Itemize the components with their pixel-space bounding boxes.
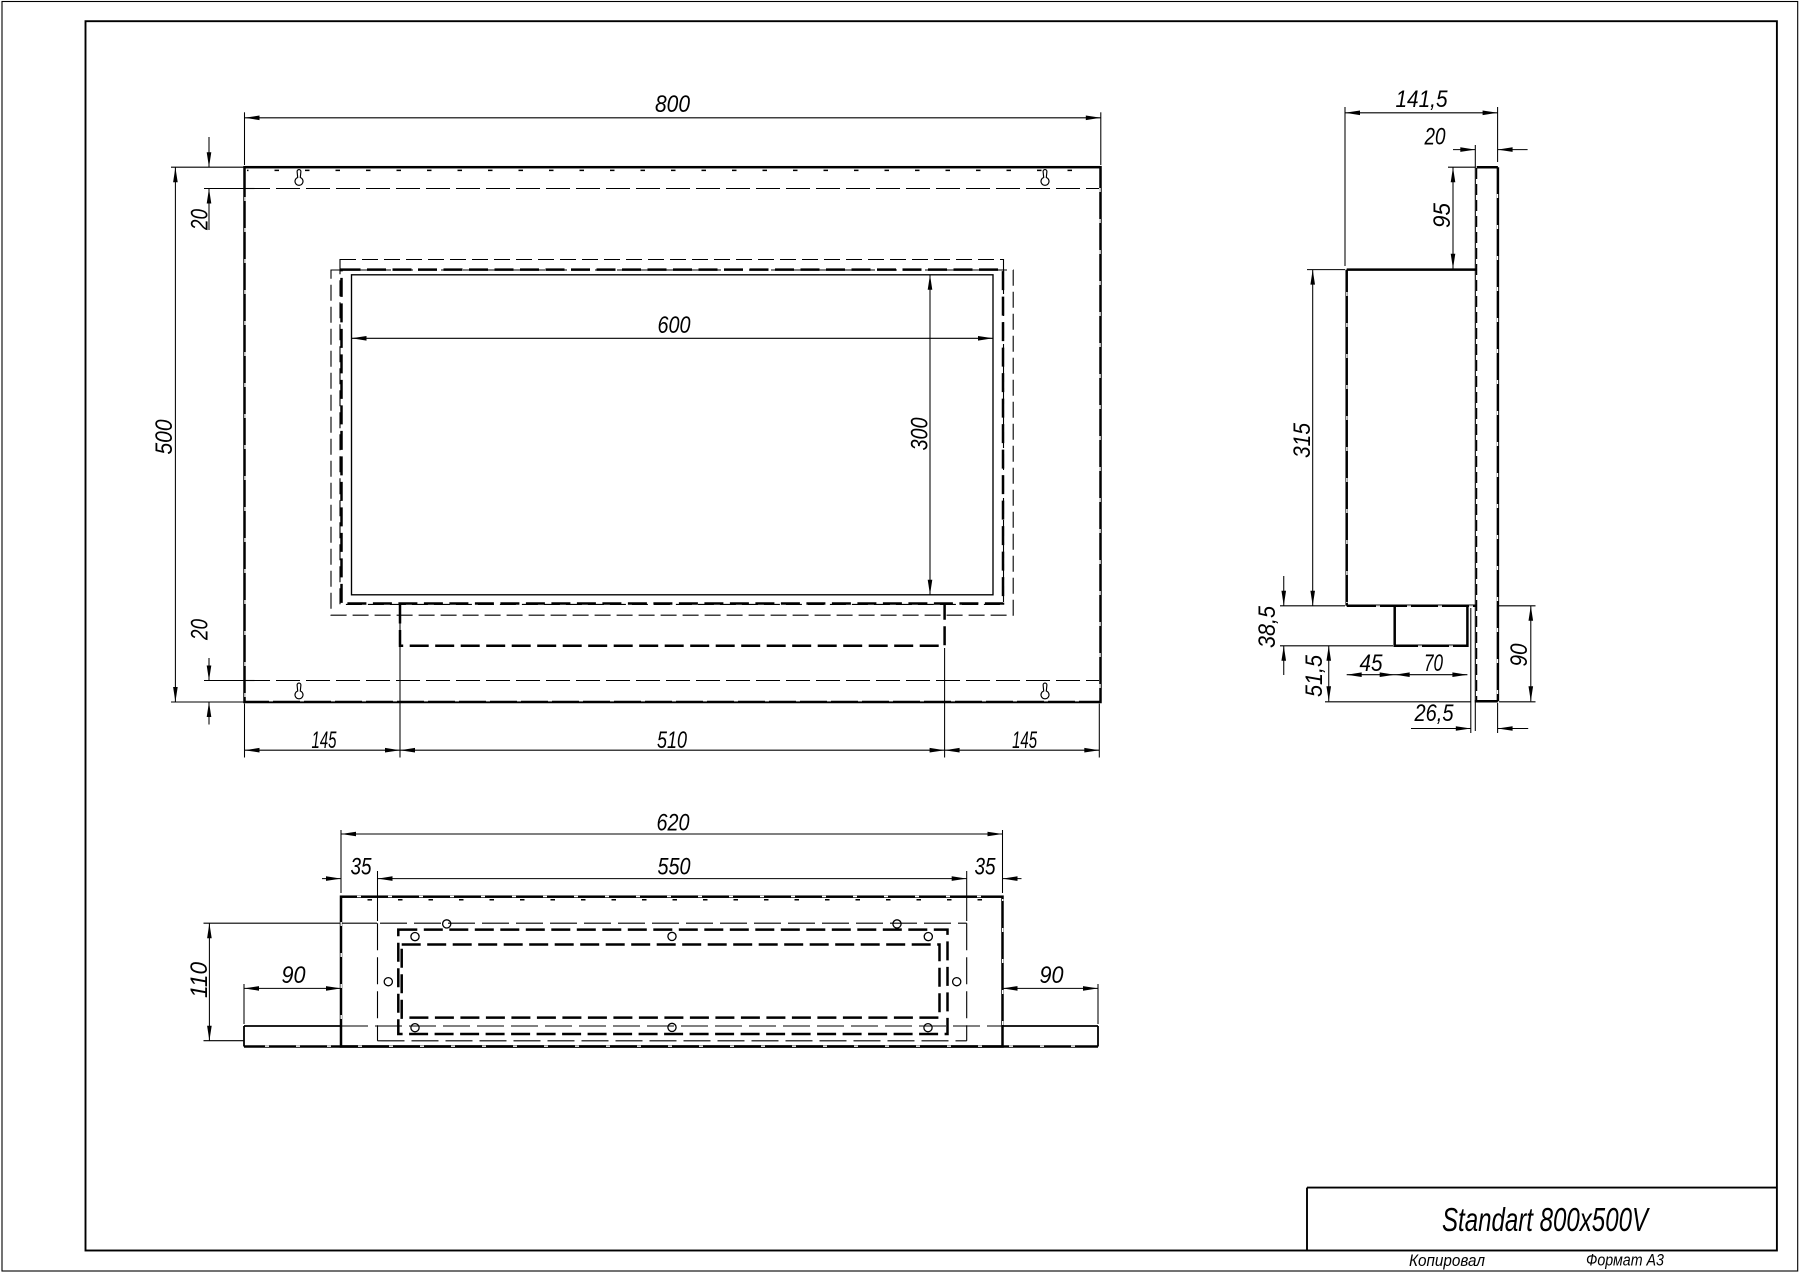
svg-text:35: 35 bbox=[351, 853, 373, 880]
svg-text:Standart 800x500V: Standart 800x500V bbox=[1442, 1201, 1650, 1238]
svg-text:90: 90 bbox=[1040, 962, 1065, 989]
svg-text:45: 45 bbox=[1360, 650, 1384, 677]
svg-text:26,5: 26,5 bbox=[1414, 700, 1454, 727]
svg-text:20: 20 bbox=[1424, 124, 1446, 151]
svg-text:90: 90 bbox=[282, 962, 307, 989]
svg-text:315: 315 bbox=[1289, 422, 1316, 458]
svg-text:500: 500 bbox=[151, 419, 178, 455]
svg-text:38,5: 38,5 bbox=[1254, 605, 1281, 648]
svg-text:Копировал: Копировал bbox=[1409, 1251, 1485, 1270]
svg-text:Формат А3: Формат А3 bbox=[1586, 1251, 1664, 1270]
svg-text:550: 550 bbox=[658, 853, 692, 880]
svg-text:145: 145 bbox=[312, 727, 337, 754]
svg-text:70: 70 bbox=[1424, 650, 1443, 677]
svg-text:110: 110 bbox=[186, 961, 213, 998]
svg-text:20: 20 bbox=[187, 618, 214, 640]
svg-text:145: 145 bbox=[1012, 727, 1037, 754]
svg-text:800: 800 bbox=[655, 91, 691, 118]
svg-text:95: 95 bbox=[1429, 202, 1456, 228]
svg-text:510: 510 bbox=[657, 727, 687, 754]
svg-text:90: 90 bbox=[1506, 643, 1533, 667]
svg-text:20: 20 bbox=[187, 208, 214, 230]
svg-text:600: 600 bbox=[658, 312, 692, 339]
svg-text:300: 300 bbox=[907, 417, 934, 451]
svg-text:141,5: 141,5 bbox=[1396, 86, 1449, 113]
svg-text:620: 620 bbox=[657, 809, 691, 836]
svg-text:51,5: 51,5 bbox=[1301, 654, 1328, 697]
svg-text:35: 35 bbox=[975, 853, 997, 880]
